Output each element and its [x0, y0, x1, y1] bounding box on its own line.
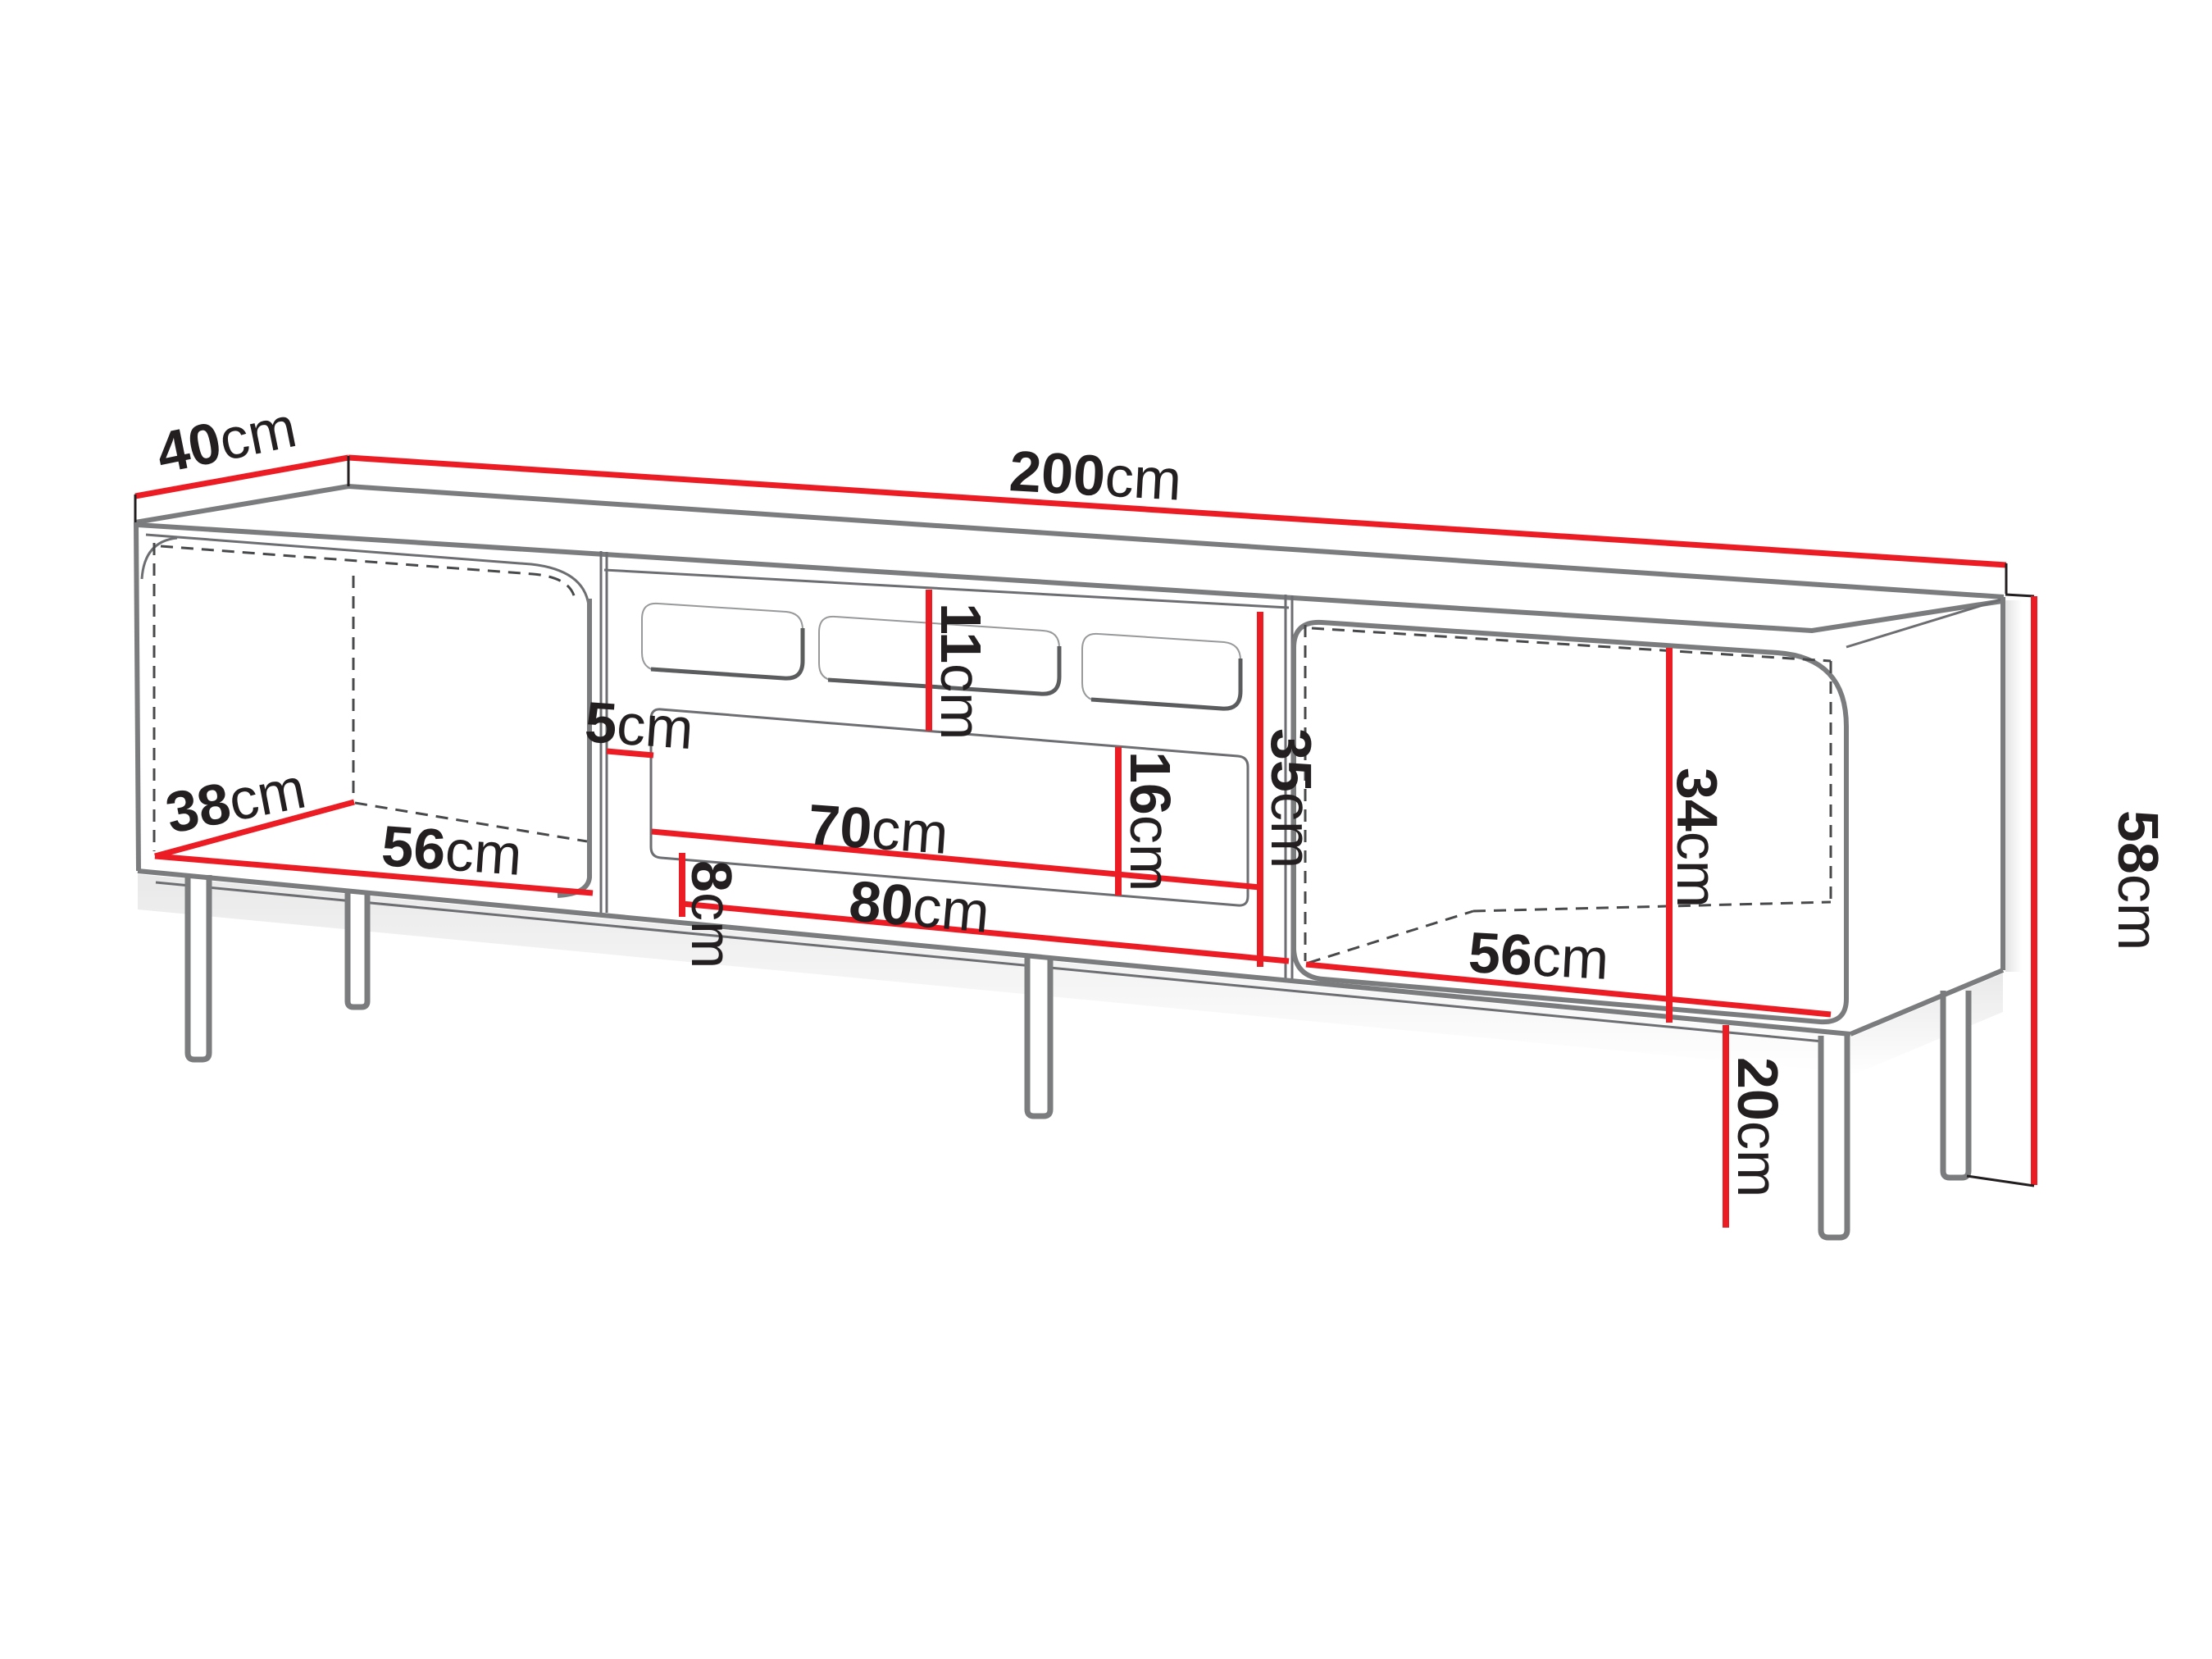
svg-text:5cm: 5cm: [583, 690, 695, 761]
svg-text:80cm: 80cm: [847, 868, 992, 945]
svg-text:20cm: 20cm: [1726, 1057, 1790, 1197]
svg-text:38cm: 38cm: [161, 755, 311, 845]
svg-text:35cm: 35cm: [1259, 728, 1323, 868]
svg-text:11cm: 11cm: [929, 603, 993, 740]
svg-text:200cm: 200cm: [1008, 439, 1183, 513]
svg-text:56cm: 56cm: [1467, 920, 1610, 991]
svg-text:56cm: 56cm: [380, 814, 524, 887]
svg-text:70cm: 70cm: [806, 792, 950, 866]
svg-text:8cm: 8cm: [680, 860, 744, 969]
svg-text:34cm: 34cm: [1665, 768, 1729, 908]
svg-text:16cm: 16cm: [1118, 751, 1182, 891]
svg-text:58cm: 58cm: [2106, 810, 2170, 950]
